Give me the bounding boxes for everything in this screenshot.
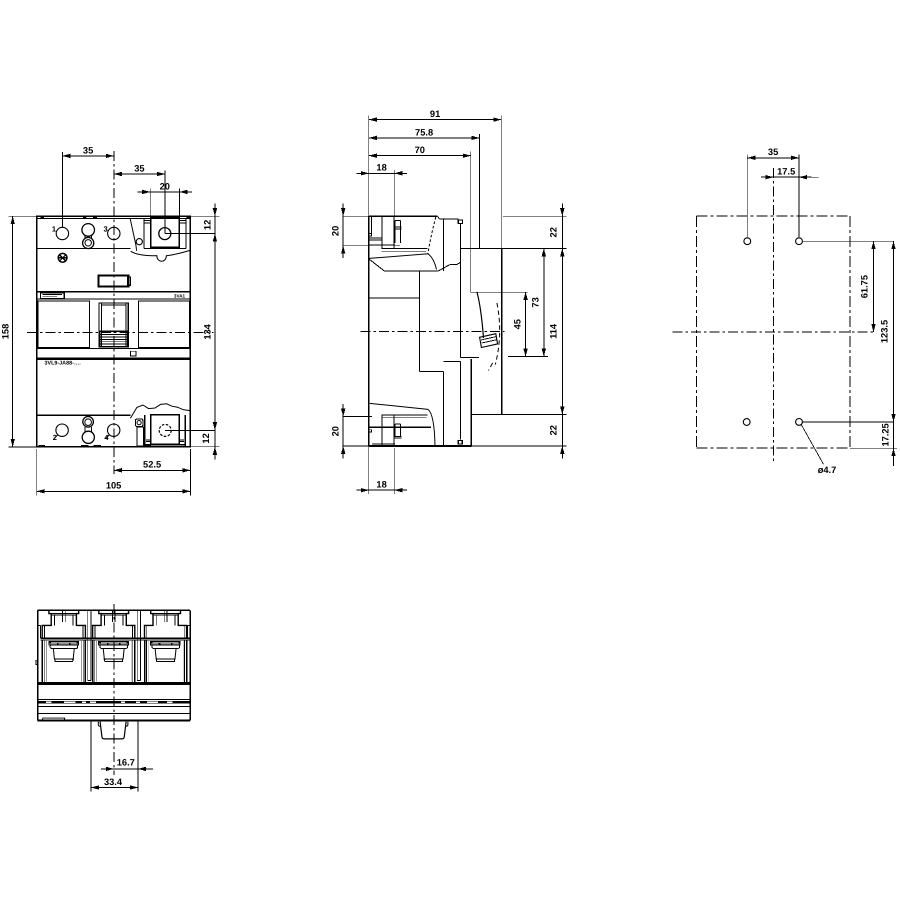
svg-text:20: 20 xyxy=(330,226,340,236)
svg-text:33.4: 33.4 xyxy=(104,777,123,787)
svg-text:18: 18 xyxy=(376,163,386,173)
svg-text:114: 114 xyxy=(549,323,559,339)
svg-text:1: 1 xyxy=(52,225,56,234)
svg-text:16.7: 16.7 xyxy=(117,758,135,768)
svg-text:105: 105 xyxy=(106,481,122,491)
svg-text:52.5: 52.5 xyxy=(143,460,161,470)
svg-text:18: 18 xyxy=(376,480,386,490)
svg-text:3: 3 xyxy=(104,225,108,234)
svg-text:75.8: 75.8 xyxy=(415,127,433,137)
svg-text:91: 91 xyxy=(430,109,440,119)
svg-text:22: 22 xyxy=(549,425,559,435)
svg-text:73: 73 xyxy=(531,297,541,307)
svg-text:12: 12 xyxy=(201,433,211,443)
svg-text:17.5: 17.5 xyxy=(777,167,795,177)
svg-text:45: 45 xyxy=(513,319,523,329)
svg-text:12: 12 xyxy=(202,220,212,230)
svg-text:ø4.7: ø4.7 xyxy=(818,465,837,475)
svg-text:123.5: 123.5 xyxy=(879,320,889,343)
svg-text:134: 134 xyxy=(203,323,213,339)
svg-text:35: 35 xyxy=(134,163,144,173)
svg-text:20: 20 xyxy=(160,181,170,191)
svg-text:61.75: 61.75 xyxy=(860,275,870,298)
svg-text:70: 70 xyxy=(415,145,425,155)
svg-text:35: 35 xyxy=(83,145,93,155)
svg-text:17.25: 17.25 xyxy=(880,423,890,446)
svg-text:20: 20 xyxy=(330,426,340,436)
svg-text:35: 35 xyxy=(768,147,778,157)
svg-text:3VA1: 3VA1 xyxy=(174,293,186,298)
svg-text:3VL9-JA88-….: 3VL9-JA88-…. xyxy=(45,361,82,367)
svg-text:22: 22 xyxy=(549,227,559,237)
svg-text:158: 158 xyxy=(1,324,11,340)
